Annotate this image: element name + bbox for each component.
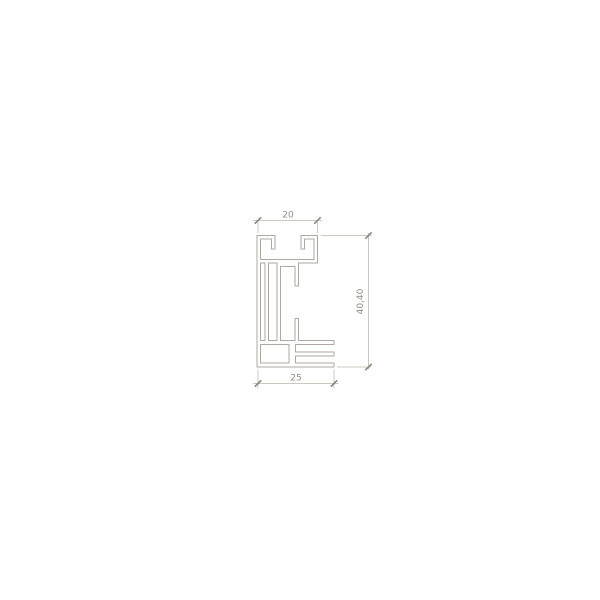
dimension-label: 40,40 — [356, 288, 366, 314]
dimension-right-height: 40,40 — [321, 232, 372, 370]
dimension-bottom-width: 25 — [253, 370, 339, 389]
profile-hollow-mid-left-chamber — [269, 263, 278, 341]
profile-outline-group — [257, 236, 334, 368]
dimension-annotations-group: 2040,4025 — [253, 211, 372, 389]
profile-drawing: 2040,4025 — [0, 0, 600, 600]
profile-hollow-bottom-left-chamber — [261, 345, 290, 364]
profile-hollow-left-screw-channel — [261, 263, 266, 341]
dimension-label: 20 — [282, 211, 294, 221]
dimension-top-width: 20 — [253, 211, 322, 234]
dimension-label: 25 — [290, 374, 301, 384]
drawing-canvas: 2040,4025 — [0, 0, 600, 600]
